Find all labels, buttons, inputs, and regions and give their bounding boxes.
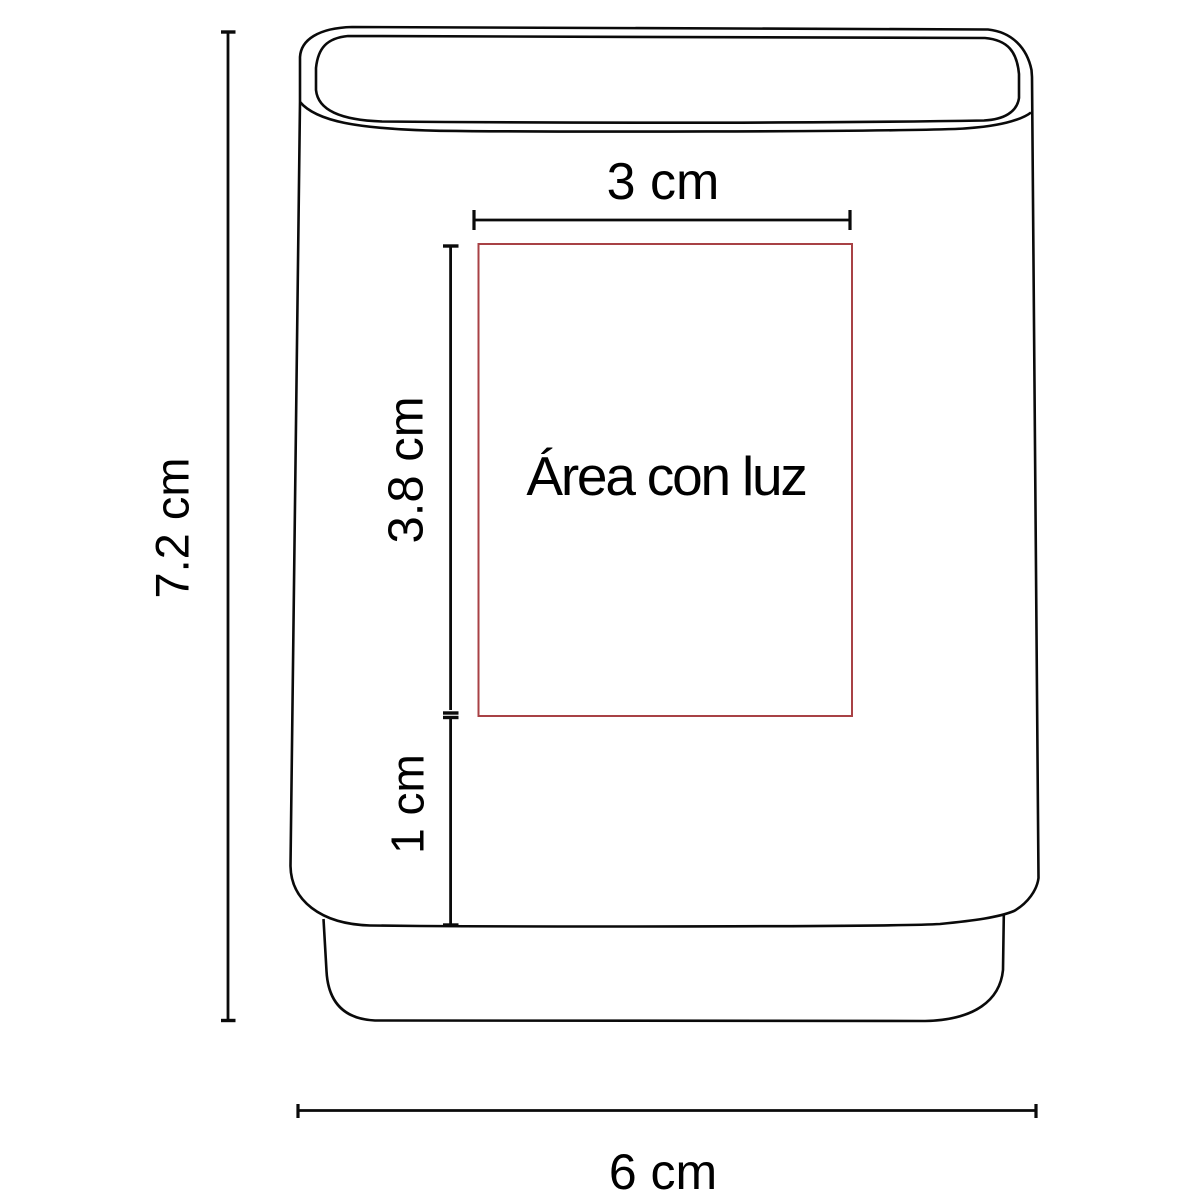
- svg-text:6 cm: 6 cm: [609, 1144, 717, 1200]
- svg-text:Área con luz: Área con luz: [526, 445, 805, 507]
- svg-text:3 cm: 3 cm: [607, 153, 720, 211]
- svg-text:3.8 cm: 3.8 cm: [380, 396, 434, 543]
- svg-text:7.2 cm: 7.2 cm: [146, 457, 199, 598]
- svg-text:1 cm: 1 cm: [382, 754, 434, 854]
